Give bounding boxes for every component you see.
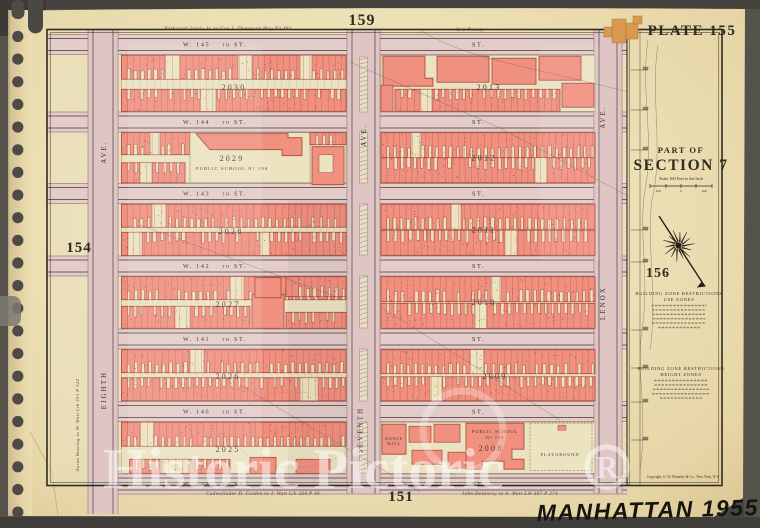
svg-text:ST.: ST. bbox=[472, 409, 485, 416]
svg-text:ST.: ST. bbox=[472, 191, 485, 198]
svg-text:2012: 2012 bbox=[472, 153, 497, 162]
svg-text:USE ZONES: USE ZONES bbox=[664, 297, 695, 302]
svg-text:PART OF: PART OF bbox=[658, 145, 704, 155]
svg-text:159: 159 bbox=[349, 12, 376, 29]
svg-text:PUBLIC SCHOOL: PUBLIC SCHOOL bbox=[472, 429, 518, 434]
svg-text:Historic Pictoric: Historic Pictoric bbox=[103, 438, 503, 501]
svg-text:ST.: ST. bbox=[472, 263, 485, 270]
svg-text:Nathaniel Jarvis Jr. to Gue J.: Nathaniel Jarvis Jr. to Gue J. Thompson … bbox=[163, 27, 291, 32]
svg-text:PLATE 155: PLATE 155 bbox=[648, 23, 737, 39]
svg-text:BUILDING ZONE RESTRICTIONS: BUILDING ZONE RESTRICTIONS bbox=[637, 366, 724, 371]
svg-text:2010: 2010 bbox=[472, 298, 497, 307]
svg-text:100: 100 bbox=[655, 189, 660, 193]
svg-text:AVE.: AVE. bbox=[101, 140, 108, 164]
svg-text:Scale 100 Feet to the Inch: Scale 100 Feet to the Inch bbox=[659, 176, 704, 181]
svg-text:R: R bbox=[595, 449, 619, 485]
svg-text:PLAYGROUND: PLAYGROUND bbox=[541, 452, 580, 457]
svg-text:100: 100 bbox=[701, 189, 706, 193]
svg-text:AVE.: AVE. bbox=[361, 123, 368, 147]
svg-text:154: 154 bbox=[66, 240, 92, 256]
svg-text:ST.: ST. bbox=[472, 42, 485, 49]
svg-text:2011: 2011 bbox=[472, 225, 497, 234]
svg-text:2013: 2013 bbox=[477, 83, 502, 92]
svg-text:BUILDING ZONE RESTRICTIONS: BUILDING ZONE RESTRICTIONS bbox=[635, 291, 722, 296]
svg-text:Arm Twenty: Arm Twenty bbox=[455, 28, 484, 33]
svg-text:156: 156 bbox=[646, 266, 670, 281]
svg-text:ST.: ST. bbox=[472, 336, 485, 343]
svg-text:AVE.: AVE. bbox=[600, 105, 607, 129]
svg-text:ST.: ST. bbox=[472, 119, 485, 126]
svg-text:LENOX: LENOX bbox=[600, 286, 607, 320]
svg-text:Aaron Bussing to W. Watt Lib 3: Aaron Bussing to W. Watt Lib 331 P 312 bbox=[75, 378, 80, 472]
svg-text:HEIGHT ZONES: HEIGHT ZONES bbox=[660, 372, 701, 377]
svg-text:0: 0 bbox=[680, 189, 682, 193]
svg-text:EIGHTH: EIGHTH bbox=[101, 371, 108, 410]
